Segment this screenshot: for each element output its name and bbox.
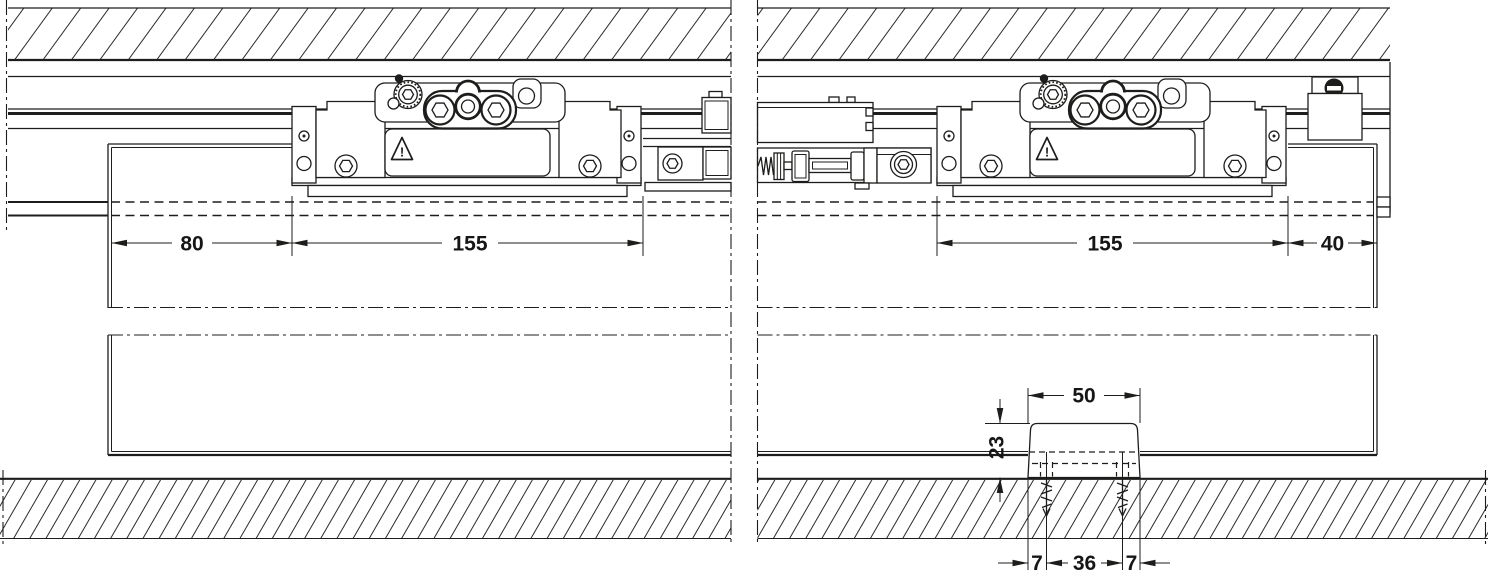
dim-80: 80 <box>180 233 203 256</box>
ceiling-hatch <box>8 8 1390 60</box>
dim-155-right: 155 <box>1087 233 1122 256</box>
installation-drawing: ! <box>0 0 1488 574</box>
dim-155-left: 155 <box>452 233 487 256</box>
dim-50: 50 <box>1072 385 1095 408</box>
dim-7-right: 7 <box>1126 552 1138 574</box>
dim-7-left: 7 <box>1031 552 1043 574</box>
dim-23: 23 <box>986 436 1009 459</box>
dim-40: 40 <box>1321 233 1344 256</box>
dim-36: 36 <box>1073 552 1096 574</box>
sliding-door-section-diagram: ! <box>0 0 1488 574</box>
